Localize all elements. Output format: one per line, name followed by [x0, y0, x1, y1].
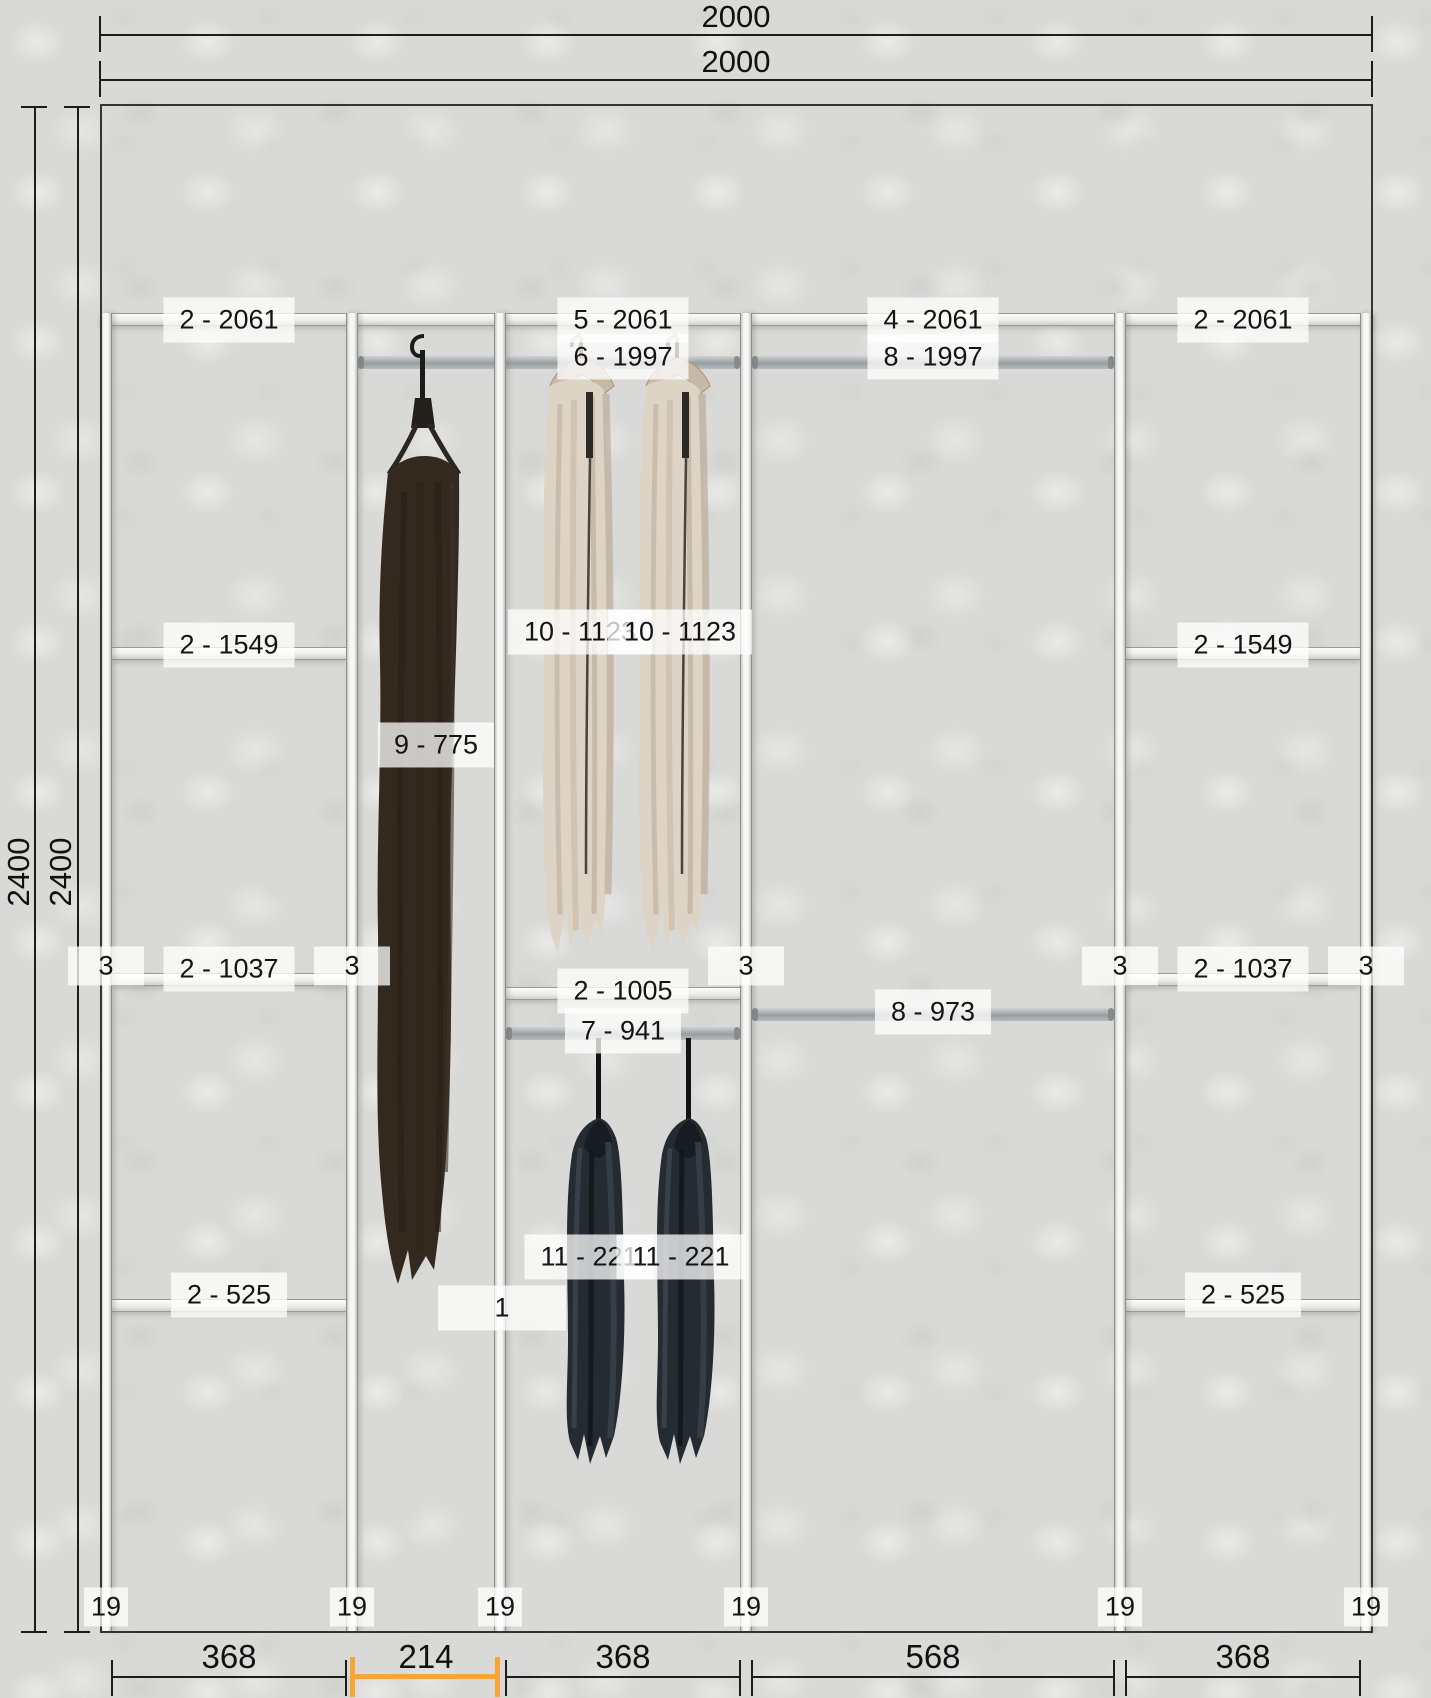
label-dress: 9 - 775 — [378, 722, 494, 767]
label-sec4-rod-mid: 8 - 973 — [875, 989, 991, 1034]
label-sec4-rod-top: 8 - 1997 — [867, 334, 998, 379]
top-dim-outer-tick-left — [99, 16, 101, 52]
label-sec3-shelf-mid: 2 - 1005 — [557, 968, 688, 1013]
bottom-dim-5-tick-left — [1125, 1660, 1127, 1696]
bottom-dim-2-tick-right — [495, 1657, 500, 1697]
bottom-dim-3-tick-left — [505, 1660, 507, 1696]
label-panel1-thickness: 19 — [84, 1587, 128, 1626]
top-dimension-value-outer: 2000 — [702, 0, 771, 35]
label-panel1-edge: 3 — [68, 946, 144, 985]
left-dim-outer-tick-top — [21, 106, 47, 108]
left-dim-inner-tick-bottom — [64, 1631, 90, 1633]
bottom-dim-5-tick-right — [1359, 1660, 1361, 1696]
closet-left-edge — [100, 104, 102, 1633]
label-panel4-edge: 3 — [708, 946, 784, 985]
label-panel3-thickness: 19 — [478, 1587, 522, 1626]
top-dim-outer-tick-right — [1371, 16, 1373, 52]
hanging-dress[interactable] — [368, 332, 480, 1304]
label-shirt-2: 10 - 1123 — [608, 609, 752, 654]
bottom-dim-1-tick-right — [345, 1660, 347, 1696]
left-dim-outer-tick-bottom — [21, 1631, 47, 1633]
closet-bottom-edge — [100, 1631, 1373, 1633]
bottom-dim-4-tick-left — [751, 1660, 753, 1696]
label-panel5-edge: 3 — [1082, 946, 1158, 985]
bottom-dim-value-3: 368 — [595, 1638, 650, 1676]
vertical-panel-3[interactable] — [494, 313, 506, 1631]
label-sec5-shelf-4: 2 - 525 — [1185, 1272, 1301, 1317]
wardrobe-canvas: 2000 2000 2400 2400 — [0, 0, 1431, 1698]
label-panel2-thickness: 19 — [330, 1587, 374, 1626]
label-panel3-number: 1 — [438, 1285, 566, 1330]
label-panel4-thickness: 19 — [724, 1587, 768, 1626]
label-sec1-shelf-3: 2 - 1037 — [163, 946, 294, 991]
bottom-dim-line-4[interactable] — [752, 1676, 1114, 1678]
closet-right-edge — [1371, 104, 1373, 1633]
left-dim-inner-tick-top — [64, 106, 90, 108]
label-sec5-shelf-3: 2 - 1037 — [1177, 946, 1308, 991]
closet-top-edge — [100, 104, 1373, 106]
top-dim-inner-tick-right — [1371, 61, 1373, 97]
label-sec5-shelf-2: 2 - 1549 — [1177, 622, 1308, 667]
bottom-dim-value-4: 568 — [905, 1638, 960, 1676]
bottom-dim-line-3[interactable] — [506, 1676, 740, 1678]
label-sec5-shelf-top: 2 - 2061 — [1177, 297, 1308, 342]
label-sec3-rod-top: 6 - 1997 — [557, 334, 688, 379]
label-sec1-shelf-top: 2 - 2061 — [163, 297, 294, 342]
label-sec1-shelf-4: 2 - 525 — [171, 1272, 287, 1317]
left-dimension-value-outer: 2400 — [1, 838, 37, 907]
top-dim-inner-tick-left — [99, 61, 101, 97]
label-sec1-shelf-2: 2 - 1549 — [163, 622, 294, 667]
bottom-dim-value-5: 368 — [1215, 1638, 1270, 1676]
bottom-dim-value-1: 368 — [201, 1638, 256, 1676]
bottom-dim-2-tick-left — [350, 1657, 355, 1697]
label-panel2-edge: 3 — [314, 946, 390, 985]
label-sec3-rod-mid: 7 - 941 — [565, 1008, 681, 1053]
bottom-dim-4-tick-right — [1113, 1660, 1115, 1696]
bottom-dim-1-tick-left — [111, 1660, 113, 1696]
bottom-dim-line-5[interactable] — [1126, 1676, 1360, 1678]
top-dimension-value-inner: 2000 — [702, 44, 771, 80]
bottom-dim-line-1[interactable] — [112, 1676, 346, 1678]
bottom-dim-3-tick-right — [739, 1660, 741, 1696]
label-panel6-edge: 3 — [1328, 946, 1404, 985]
label-panel6-thickness: 19 — [1344, 1587, 1388, 1626]
label-panel5-thickness: 19 — [1098, 1587, 1142, 1626]
label-jacket-2: 11 - 221 — [616, 1234, 745, 1279]
bottom-dim-value-2: 214 — [398, 1638, 453, 1676]
left-dimension-value-inner: 2400 — [43, 838, 79, 907]
